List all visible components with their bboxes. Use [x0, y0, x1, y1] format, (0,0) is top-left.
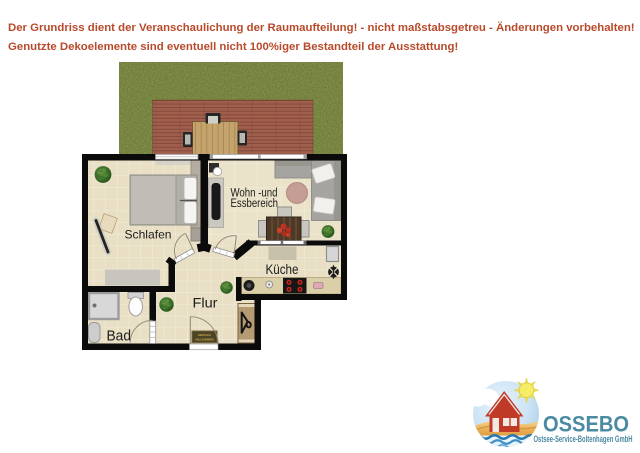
svg-text:HERZLICH: HERZLICH: [198, 333, 211, 337]
svg-text:WILLKOMMEN: WILLKOMMEN: [195, 338, 213, 342]
svg-text:Flur: Flur: [193, 295, 218, 311]
svg-text:Küche: Küche: [266, 262, 299, 277]
svg-text:Bad: Bad: [107, 328, 132, 345]
svg-text:Schlafen: Schlafen: [125, 228, 172, 242]
svg-text:Essbereich: Essbereich: [231, 198, 279, 210]
svg-text:OSSEBO: OSSEBO: [543, 412, 629, 437]
svg-text:Ostsee-Service-Boltenhagen Gmb: Ostsee-Service-Boltenhagen GmbH: [534, 434, 633, 445]
